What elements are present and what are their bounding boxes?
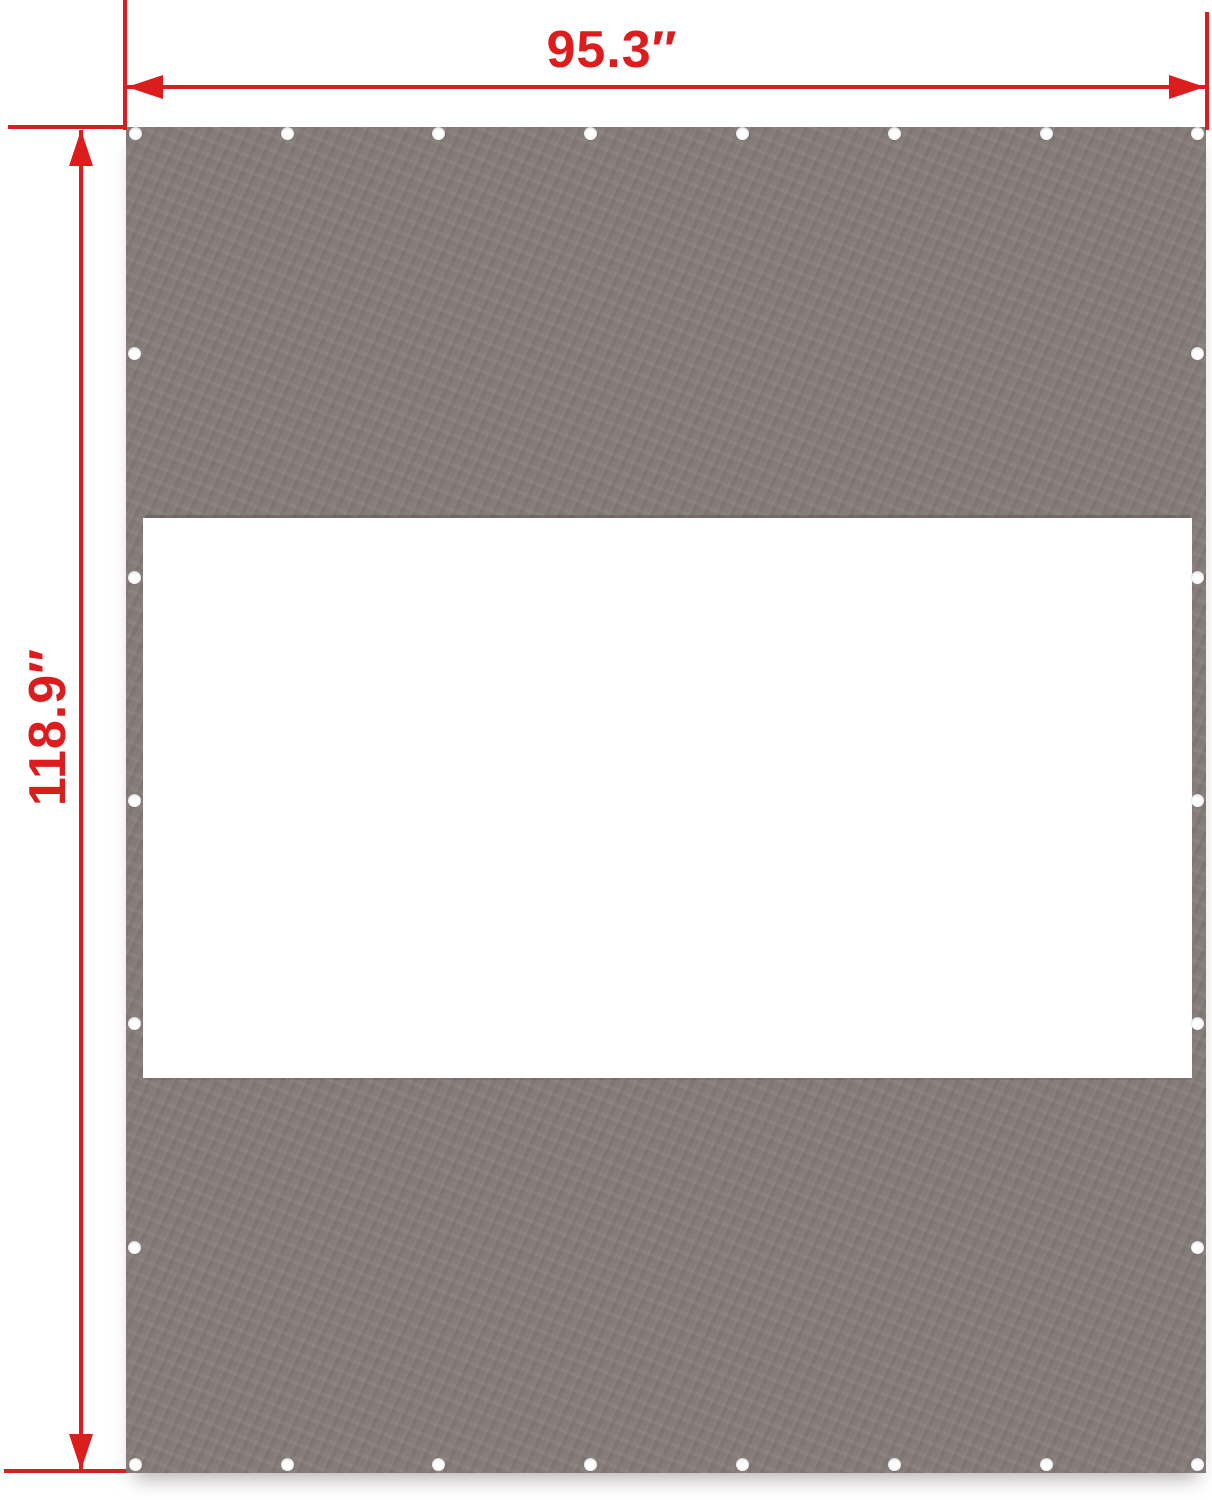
- grommet-layer: [0, 0, 1212, 1500]
- grommet: [1191, 127, 1204, 140]
- grommet: [1191, 347, 1204, 360]
- arrowhead-down-icon: [69, 1434, 93, 1470]
- grommet: [432, 127, 445, 140]
- height-extension-line-top: [8, 125, 126, 129]
- grommet: [736, 1458, 749, 1471]
- grommet: [128, 571, 141, 584]
- grommet: [736, 127, 749, 140]
- height-dimension-line: [79, 130, 83, 1470]
- grommet: [1191, 571, 1204, 584]
- width-dimension-line: [127, 85, 1205, 89]
- grommet: [888, 127, 901, 140]
- arrowhead-right-icon: [1169, 75, 1205, 99]
- width-dimension-label: 95.3″: [546, 24, 677, 76]
- grommet: [128, 347, 141, 360]
- grommet: [1191, 1458, 1204, 1471]
- height-dimension-label: 118.9″: [22, 648, 74, 806]
- grommet: [281, 1458, 294, 1471]
- grommet: [129, 1458, 142, 1471]
- grommet: [1191, 1017, 1204, 1030]
- height-extension-line-bottom: [4, 1469, 126, 1473]
- grommet: [128, 1241, 141, 1254]
- grommet: [281, 127, 294, 140]
- grommet: [1040, 127, 1053, 140]
- width-extension-line-left: [123, 0, 127, 130]
- arrowhead-left-icon: [127, 75, 163, 99]
- grommet: [432, 1458, 445, 1471]
- grommet: [1191, 1241, 1204, 1254]
- arrowhead-up-icon: [69, 130, 93, 166]
- grommet: [128, 1017, 141, 1030]
- width-extension-line-right: [1205, 12, 1209, 130]
- grommet: [1191, 794, 1204, 807]
- grommet: [1040, 1458, 1053, 1471]
- grommet: [888, 1458, 901, 1471]
- grommet: [129, 127, 142, 140]
- grommet: [128, 794, 141, 807]
- figure-canvas: 95.3″ 118.9″: [0, 0, 1212, 1500]
- grommet: [584, 1458, 597, 1471]
- grommet: [584, 127, 597, 140]
